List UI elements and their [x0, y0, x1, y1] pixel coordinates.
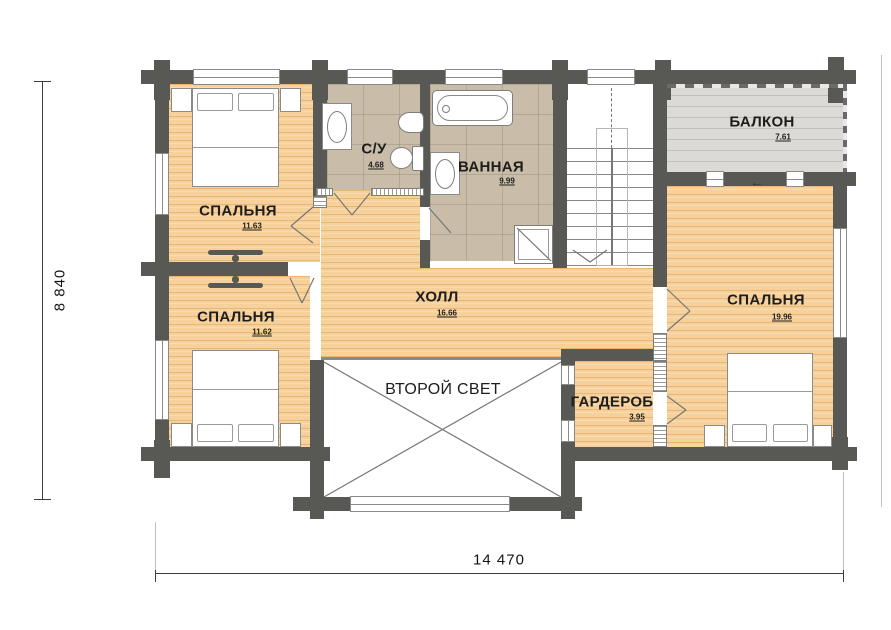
room-label-bedroom-top-left: СПАЛЬНЯ	[199, 203, 277, 220]
window-top-bedroom1	[193, 69, 280, 85]
room-label-hall: ХОЛЛ	[415, 289, 458, 306]
partition-wardrobe-b	[653, 425, 667, 447]
stairs-handrail	[596, 128, 628, 266]
dimension-label-height: 8 840	[52, 269, 69, 312]
log-stub-top-1	[154, 60, 170, 100]
bidet-icon	[398, 112, 424, 133]
floor-plan: СПАЛЬНЯ 11.63 СПАЛЬНЯ 11.62 С/У 4.68 ВАН…	[0, 0, 891, 630]
log-stub-bottom-left	[154, 440, 170, 478]
wall-stairs-left	[553, 84, 567, 268]
window-left-bedroom2	[155, 340, 169, 420]
dimension-extension-line	[155, 522, 156, 570]
window-top-bathroom	[445, 69, 503, 85]
table-leg	[232, 276, 239, 283]
bed-icon	[192, 350, 279, 447]
log-stub-bottom-2	[310, 437, 324, 449]
room-label-bathroom: ВАННАЯ	[458, 159, 524, 176]
nightstand-icon	[171, 423, 192, 447]
partition-bedroom1-east	[313, 196, 327, 208]
room-area-wc: 4.68	[368, 161, 384, 170]
log-stub-bottom-right	[832, 437, 848, 470]
log-stub-top-right	[828, 57, 844, 103]
wall-wardrobe-top	[561, 349, 658, 361]
bed-icon	[192, 88, 279, 187]
room-area-bedroom-bottom-left: 11.62	[252, 328, 272, 337]
log-stub-top-3	[552, 60, 568, 100]
room-area-wardrobe: 3.95	[629, 413, 645, 422]
nightstand-icon	[171, 88, 192, 112]
room-label-balcony: БАЛКОН	[729, 114, 794, 131]
partition-wardrobe-a	[653, 361, 667, 392]
nightstand-icon	[280, 423, 301, 447]
toilet-icon	[390, 146, 425, 171]
floor-hall-corridor	[321, 190, 420, 268]
nightstand-icon	[704, 425, 725, 447]
table-leg	[232, 255, 239, 262]
nightstand-icon	[813, 425, 832, 447]
room-label-bedroom-bottom-left: СПАЛЬНЯ	[197, 309, 275, 326]
dimension-label-width: 14 470	[473, 552, 525, 569]
shower-icon	[514, 225, 553, 264]
dimension-tick	[34, 499, 51, 500]
bathtub-icon	[432, 90, 513, 126]
sheet-edge-line	[881, 55, 882, 507]
sink-icon	[430, 152, 460, 195]
dimension-line-horizontal	[155, 573, 843, 574]
room-area-bedroom-top-left: 11.63	[242, 222, 262, 231]
room-area-hall: 16.66	[437, 309, 457, 318]
window-top-wc	[347, 69, 393, 85]
second-light-edge-beam	[321, 357, 561, 360]
window-wardrobe-b	[561, 420, 575, 442]
room-area-bathroom: 9.99	[499, 177, 515, 186]
balcony-window-opening	[786, 171, 804, 187]
dimension-tick	[34, 81, 51, 82]
room-label-second-light: ВТОРОЙ СВЕТ	[385, 381, 501, 399]
partition-wc-south-a	[316, 188, 333, 196]
room-area-balcony: 7.61	[775, 133, 791, 142]
wall-bedroom-divider	[141, 262, 288, 276]
wall-bottom-right	[561, 447, 857, 461]
dimension-extension-line	[843, 472, 844, 570]
nightstand-icon	[280, 88, 301, 112]
window-right-bedroom	[833, 228, 847, 338]
dimension-line-vertical	[42, 81, 43, 500]
room-label-wardrobe: ГАРДЕРОБ	[571, 394, 654, 411]
balcony-door-opening	[706, 171, 724, 187]
partition-hall-east-a	[653, 333, 667, 361]
partition-wc-south-b	[371, 188, 424, 196]
floor-hall-main	[321, 268, 653, 360]
sink-icon	[322, 103, 352, 150]
window-second-light-south	[350, 496, 510, 512]
balcony-exit-arrow-icon: ←	[751, 175, 764, 190]
bed-icon	[727, 353, 813, 447]
window-wardrobe-a	[561, 365, 575, 385]
balcony-railing-top	[667, 84, 843, 88]
wall-bathroom-left-lower	[420, 240, 430, 268]
table-icon	[208, 283, 263, 288]
balcony-railing-right	[843, 84, 847, 172]
window-left-bedroom1	[155, 153, 169, 215]
log-stub-top-4	[655, 60, 671, 100]
window-top-stairs	[587, 69, 635, 85]
room-area-bedroom-right: 19.96	[772, 313, 792, 322]
log-stub-top-2	[312, 60, 328, 100]
room-label-wc: С/У	[361, 141, 386, 158]
room-label-bedroom-right: СПАЛЬНЯ	[727, 292, 805, 309]
